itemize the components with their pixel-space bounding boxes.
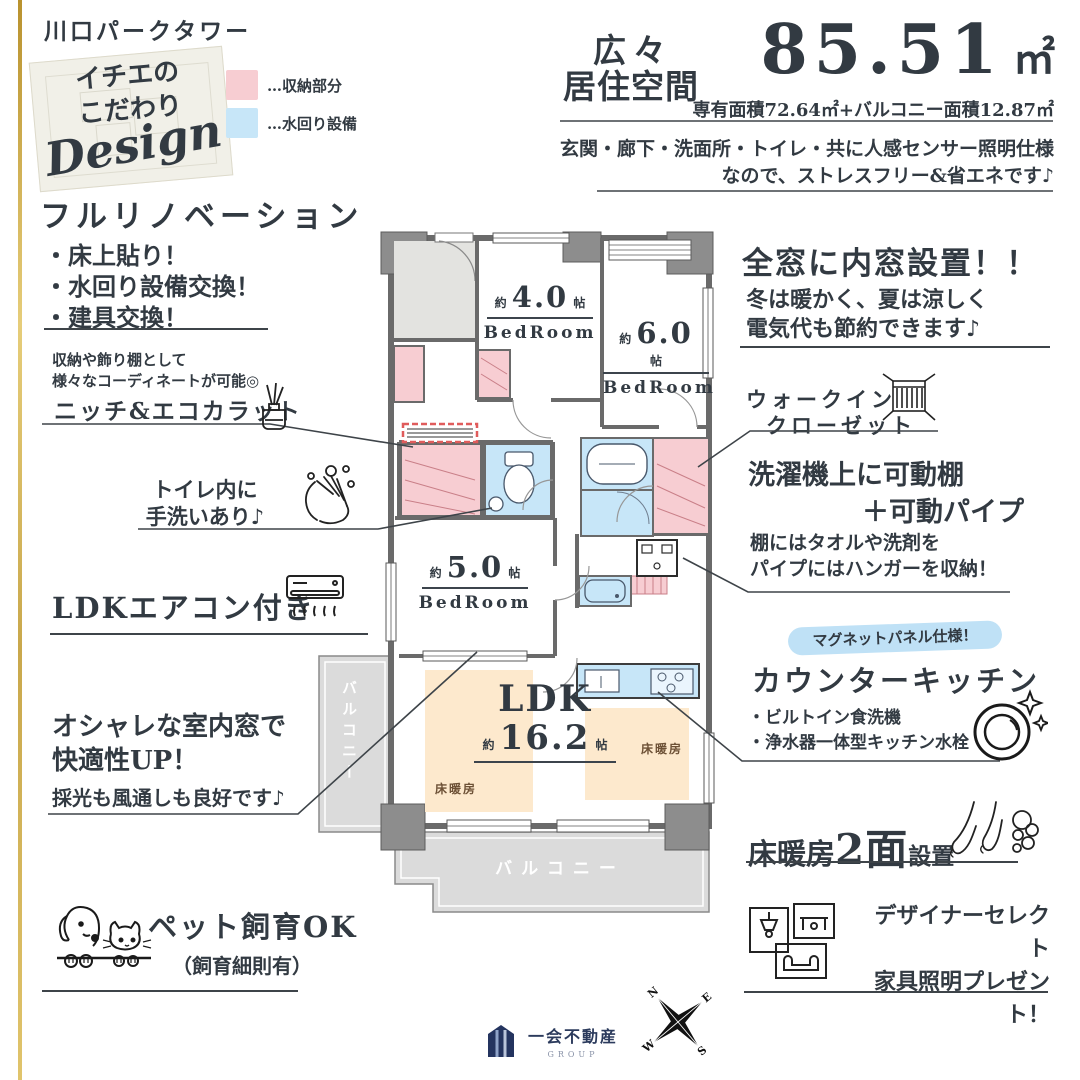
walk-in-closet-icon bbox=[880, 372, 938, 426]
compass-w: W bbox=[639, 1037, 658, 1056]
company-logo: 一会不動産 GROUP bbox=[484, 1022, 618, 1060]
connector-lines-overlay bbox=[0, 0, 1080, 1080]
compass-s: S bbox=[695, 1043, 709, 1058]
company-logo-mark bbox=[484, 1022, 518, 1060]
company-group: GROUP bbox=[528, 1050, 618, 1059]
furniture-lighting-icon bbox=[748, 902, 858, 982]
compass-n: N bbox=[645, 984, 661, 1000]
diffuser-icon bbox=[252, 383, 296, 433]
company-name: 一会不動産 bbox=[528, 1023, 618, 1047]
dog-cat-icon bbox=[55, 898, 155, 980]
hand-wash-icon bbox=[295, 462, 357, 526]
compass-icon: N E S W bbox=[636, 980, 720, 1064]
flyer-page: 川口パークタワー イチエの こだわり Design …収納部分 …水回り設備 広… bbox=[0, 0, 1080, 1080]
compass-e: E bbox=[699, 990, 714, 1005]
warm-feet-icon bbox=[938, 798, 1042, 870]
clean-dish-icon bbox=[968, 686, 1048, 766]
air-conditioner-icon bbox=[285, 570, 345, 626]
